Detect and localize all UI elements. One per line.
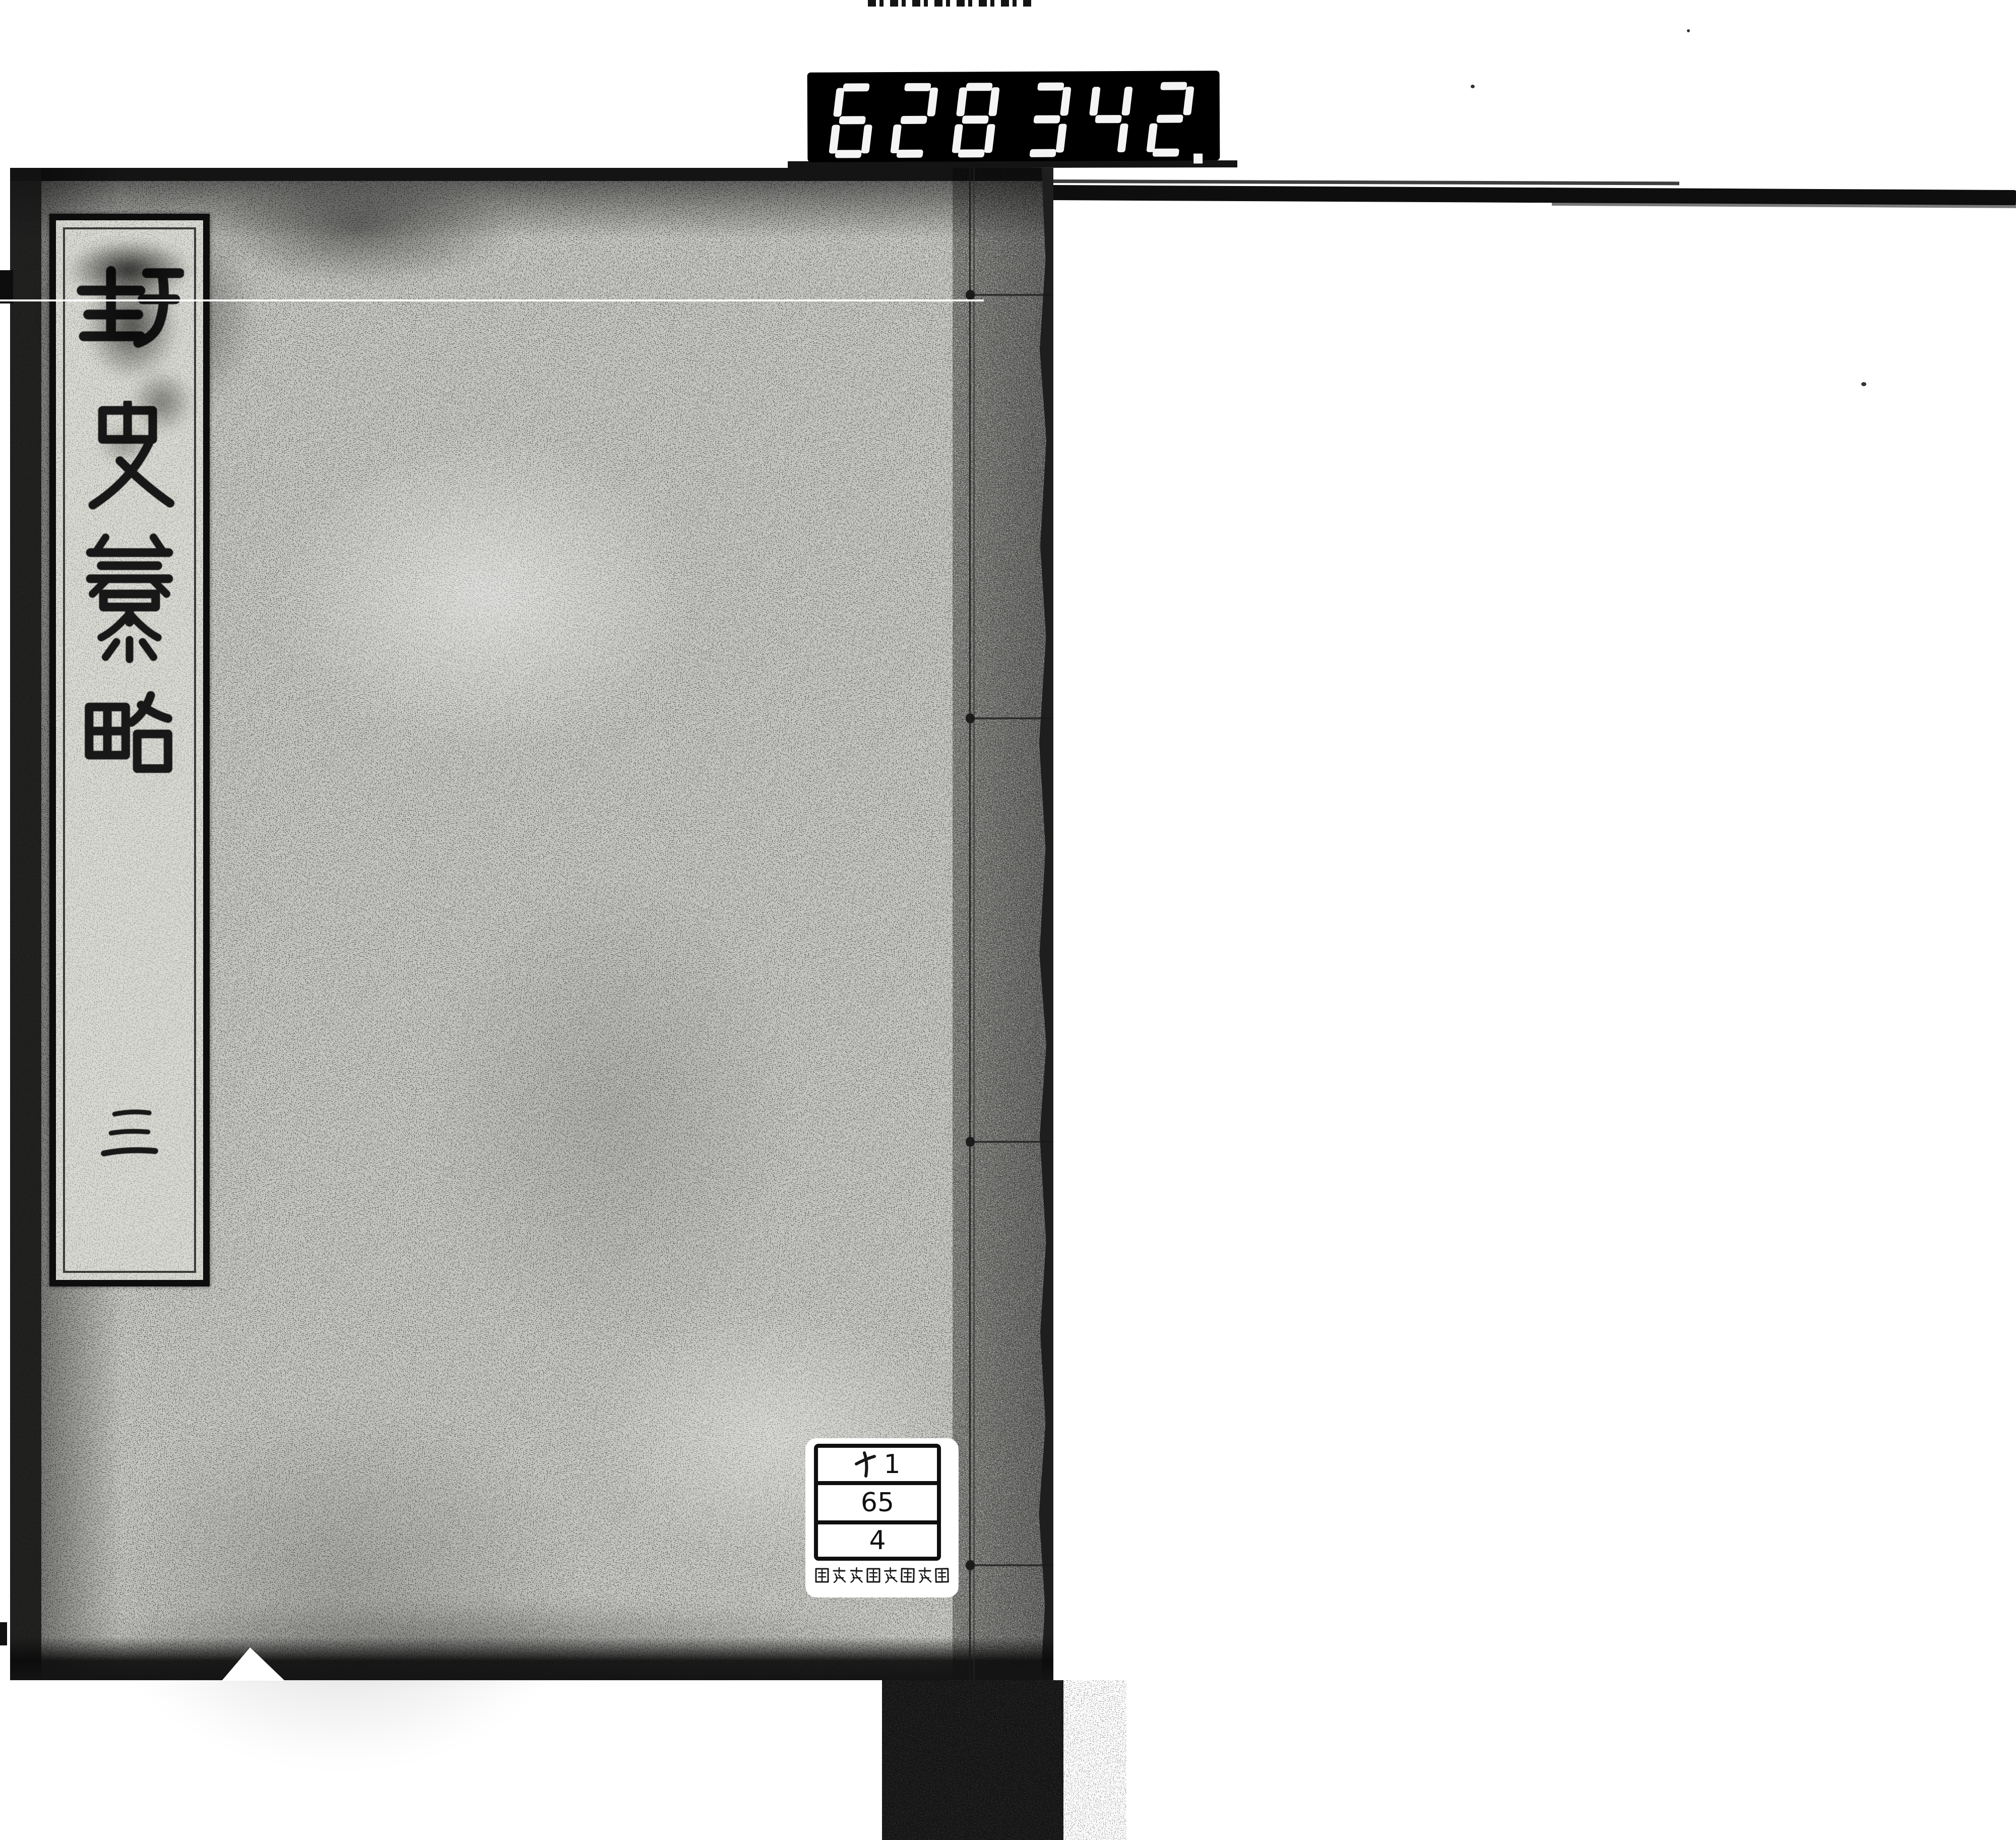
cover-dark-patch	[428, 874, 791, 1353]
call-number-row-1: ヤ 1	[818, 1448, 937, 1481]
institution-name: 国文学研究資料館	[809, 1565, 955, 1587]
counter-left-digits	[833, 83, 996, 158]
call-number-line1: 1	[884, 1449, 900, 1480]
binding-stitch-line	[969, 168, 971, 1680]
call-number-kana: ヤ	[848, 1450, 878, 1479]
volume-number-char: 三	[97, 1103, 162, 1164]
binding-thread	[972, 717, 1053, 719]
edge-line-thin	[1049, 179, 1679, 185]
title-char-4: 略	[75, 680, 184, 786]
cover-light-patch	[272, 430, 701, 758]
binding-thread	[972, 1564, 1053, 1566]
scan-left-bottom-mark	[0, 1622, 7, 1645]
seven-segment-digit	[1084, 82, 1133, 157]
call-number-line3: 4	[869, 1525, 886, 1556]
cover-bottom-edge	[10, 1637, 1053, 1680]
dust-speck	[1687, 29, 1690, 32]
counter-right-digits	[1027, 82, 1191, 157]
call-number-row-3: 4	[818, 1520, 937, 1557]
counter-decimal-point: .	[1181, 134, 1215, 154]
scanned-book-cover-page: .	[0, 0, 2016, 1840]
binding-thread	[972, 1141, 1053, 1143]
seven-segment-digit	[890, 83, 939, 158]
slip-smudge	[86, 417, 162, 472]
scanner-artifact-line	[0, 299, 984, 301]
call-number-line2: 65	[861, 1488, 894, 1518]
underlying-page-speckle	[1063, 1680, 1126, 1840]
scan-top-edge-marks	[868, 0, 1034, 7]
dust-speck	[1861, 382, 1866, 386]
underlying-page-dark-edge	[882, 1680, 1063, 1840]
cover-top-edge	[10, 168, 1053, 181]
cover-right-dark-zone	[953, 168, 1053, 1680]
binding-stitch-line-2	[973, 168, 975, 1680]
scan-left-edge-mark	[0, 270, 13, 303]
call-number-row-2: 65	[818, 1481, 937, 1520]
dust-speck	[1471, 85, 1475, 88]
bottom-dark-noise	[882, 1680, 1063, 1840]
library-call-number-label: ヤ 1 65 4 国文学研究資料館	[805, 1438, 959, 1598]
background-page-edge-line	[1049, 176, 2016, 217]
bottom-speckle-noise	[1063, 1680, 1126, 1840]
cover-left-edge	[10, 168, 41, 1680]
binding-thread	[972, 294, 1053, 296]
call-number-box: ヤ 1 65 4	[814, 1444, 941, 1561]
cover-dark-patch	[101, 1403, 580, 1766]
seven-segment-digit	[951, 83, 1000, 157]
frame-counter-display: .	[807, 71, 1220, 162]
title-char-3: 纂	[75, 526, 184, 672]
title-slip: 野 史 纂 略	[49, 214, 210, 1286]
cover-right-noise	[953, 168, 1053, 1680]
seven-segment-digit	[1023, 82, 1072, 157]
seven-segment-digit	[828, 83, 877, 158]
edge-line-thick	[1049, 185, 2016, 205]
